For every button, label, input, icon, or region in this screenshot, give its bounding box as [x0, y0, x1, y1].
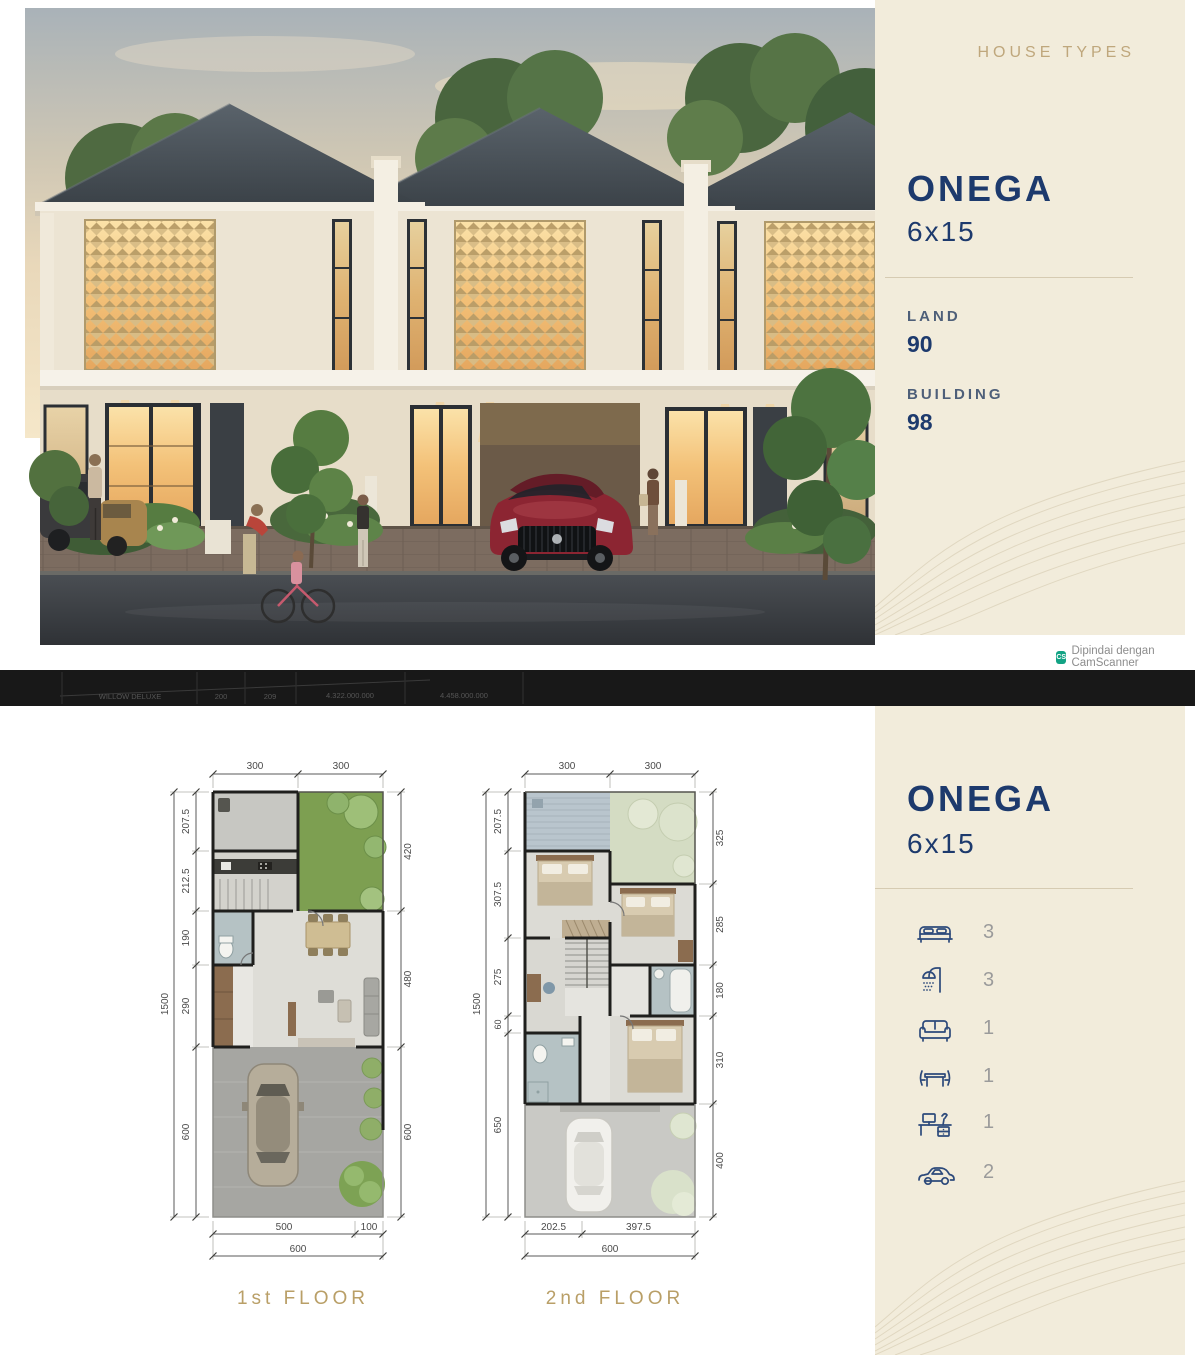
scanned-table-strip: WILLOW DELUXE 200 209 4.322.000.000 4.45… — [0, 670, 1195, 706]
dim-label: 500 — [276, 1222, 293, 1233]
camscanner-text: Dipindai dengan CamScanner — [1071, 645, 1195, 669]
first-floor-label: 1st FLOOR — [158, 1288, 448, 1310]
wardrobe — [213, 965, 233, 1047]
sofa-icon — [915, 1012, 955, 1044]
strip-price2: 4.458.000.000 — [440, 691, 488, 700]
dim-label: 310 — [715, 1051, 726, 1068]
house-type-size: 6x15 — [907, 216, 976, 248]
dim-label: 202.5 — [541, 1222, 566, 1233]
feature-carport: 2 — [915, 1154, 994, 1190]
feature-sofa: 1 — [915, 1010, 994, 1046]
dim-label: 285 — [715, 916, 726, 933]
dim-label: 207.5 — [181, 809, 192, 834]
feature-count: 3 — [983, 921, 994, 944]
dim-label: 325 — [715, 829, 726, 846]
house-type-title: ONEGA — [907, 168, 1054, 210]
divider — [875, 888, 1133, 889]
dim-label: 300 — [559, 761, 576, 772]
dining-table-icon — [915, 1060, 955, 1092]
feature-count: 1 — [983, 1111, 994, 1134]
land-value: 90 — [907, 331, 933, 358]
camscanner-icon: CS — [1056, 651, 1066, 664]
study-desk — [527, 974, 541, 1002]
hero-photo — [25, 8, 875, 645]
dim-label: 100 — [361, 1222, 378, 1233]
dim-label: 307.5 — [493, 882, 504, 907]
dim-label: 60 — [493, 1019, 503, 1029]
dim-label: 400 — [715, 1152, 726, 1169]
car-icon — [915, 1156, 955, 1188]
section-label: HOUSE TYPES — [977, 44, 1135, 62]
brochure-page: HOUSE TYPES ONEGA 6x15 LAND 90 BUILDING … — [0, 0, 1195, 1363]
dim-label: 300 — [247, 761, 264, 772]
bed-icon — [915, 916, 955, 948]
dim-label: 600 — [181, 1123, 192, 1140]
dim-label: 1500 — [160, 992, 171, 1015]
feature-count: 1 — [983, 1017, 994, 1040]
feature-count: 2 — [983, 1161, 994, 1184]
dim-label: 650 — [493, 1116, 504, 1133]
strip-price1: 4.322.000.000 — [326, 691, 374, 700]
feature-desk: 1 — [915, 1104, 994, 1140]
house-type-size: 6x15 — [907, 828, 976, 860]
dim-label: 600 — [403, 1123, 414, 1140]
feature-dining-table: 1 — [915, 1058, 994, 1094]
shower-icon — [915, 964, 955, 996]
parked-car-top-view — [242, 1064, 304, 1186]
dim-label: 275 — [493, 968, 504, 985]
dim-label: 480 — [403, 970, 414, 987]
strip-building: 209 — [264, 692, 277, 701]
dim-label: 300 — [333, 761, 350, 772]
strip-unit-name: WILLOW DELUXE — [99, 692, 162, 701]
feature-bathrooms: 3 — [915, 962, 994, 998]
dim-label: 300 — [645, 761, 662, 772]
dim-label: 190 — [181, 929, 192, 946]
second-floor-label: 2nd FLOOR — [470, 1288, 760, 1310]
building-label: BUILDING — [907, 386, 1004, 403]
feature-count: 3 — [983, 969, 994, 992]
hero-sidebar: HOUSE TYPES ONEGA 6x15 LAND 90 BUILDING … — [875, 0, 1185, 635]
camscanner-badge: CS Dipindai dengan CamScanner — [1056, 645, 1195, 669]
first-floor-plan: 300 300 1500 207.5 212.5 190 290 600 420… — [158, 752, 448, 1264]
house-type-title: ONEGA — [907, 778, 1054, 820]
land-label: LAND — [907, 308, 961, 325]
dim-label: 600 — [602, 1244, 619, 1255]
dim-label: 212.5 — [181, 868, 192, 893]
dim-label: 420 — [403, 843, 414, 860]
dim-label: 207.5 — [493, 809, 504, 834]
building-value: 98 — [907, 409, 933, 436]
feature-bedrooms: 3 — [915, 914, 994, 950]
dim-label: 600 — [290, 1244, 307, 1255]
plans-sidebar: ONEGA 6x15 3 — [875, 706, 1185, 1355]
car-below — [566, 1118, 612, 1212]
desk-icon — [915, 1106, 955, 1138]
dim-label: 1500 — [472, 992, 483, 1015]
feature-count: 1 — [983, 1065, 994, 1088]
divider — [885, 277, 1133, 278]
dim-label: 180 — [715, 982, 726, 999]
strip-land: 200 — [215, 692, 228, 701]
dim-label: 290 — [181, 997, 192, 1014]
dim-label: 397.5 — [626, 1222, 651, 1233]
second-floor-plan: 300 300 1500 207.5 307.5 275 60 650 325 … — [470, 752, 760, 1264]
